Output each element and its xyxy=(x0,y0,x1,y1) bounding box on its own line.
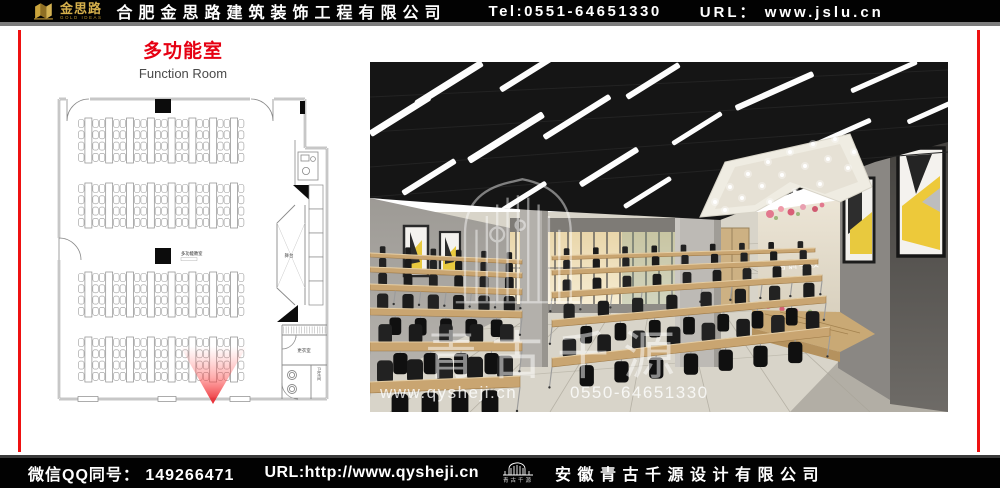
slide-root: 金思路 GOLD IDEAS 合肥金思路建筑装饰工程有限公司 Tel:0551-… xyxy=(0,0,1000,488)
top-bar: 金思路 GOLD IDEAS 合肥金思路建筑装饰工程有限公司 Tel:0551-… xyxy=(0,0,1000,22)
plan-toilet-label: 卫生间 xyxy=(317,367,321,382)
qgqy-logo-text: 青古千源 xyxy=(503,479,533,485)
logo-text: 金思路 xyxy=(60,2,103,15)
divider xyxy=(0,22,1000,26)
wechat-qq-number: 微信QQ同号： 149266471 xyxy=(28,461,234,485)
phone-number: Tel:0551-64651330 xyxy=(489,3,662,20)
plan-podium xyxy=(295,140,318,185)
page-title: 多功能室 Function Room xyxy=(108,36,258,81)
plan-shelves xyxy=(309,185,323,305)
jslu-logo-icon xyxy=(32,1,56,21)
plan-stage-label: 舞台 xyxy=(285,252,294,259)
plan-rooms xyxy=(282,325,327,399)
red-border-left xyxy=(18,30,21,452)
qgqy-logo-icon xyxy=(501,461,535,478)
interior-rendering: 培训学校 青古千源 www.qysheji.cn 0550-64651330 xyxy=(370,62,948,412)
bottom-bar: 微信QQ同号： 149266471 URL:http://www.qysheji… xyxy=(0,455,1000,488)
website-url: URL： www.jslu.cn xyxy=(700,1,884,22)
title-english: Function Room xyxy=(108,66,258,81)
jslu-logo: 金思路 GOLD IDEAS xyxy=(32,1,103,21)
red-border-right xyxy=(977,30,980,452)
watermark-url: www.qysheji.cn xyxy=(379,383,517,402)
title-chinese: 多功能室 xyxy=(108,36,258,63)
plan-room-label: 多功能教室 xyxy=(181,250,203,257)
watermark-phone: 0550-64651330 xyxy=(570,383,709,402)
plan-room-area-tag xyxy=(181,258,197,261)
logo-subtext: GOLD IDEAS xyxy=(60,16,103,21)
qgqy-logo: 青古千源 xyxy=(501,461,535,485)
company-name: 合肥金思路建筑装饰工程有限公司 xyxy=(117,0,447,23)
footer-url: URL:http://www.qysheji.cn xyxy=(264,464,479,482)
watermark-text: 青古千源 xyxy=(425,328,689,386)
plan-changing-room-label: 更衣室 xyxy=(297,347,311,354)
footer-company-name: 安徽青古千源设计有限公司 xyxy=(555,461,825,485)
floor-plan: 多功能教室 舞台 更衣室 卫生间 xyxy=(55,92,335,410)
